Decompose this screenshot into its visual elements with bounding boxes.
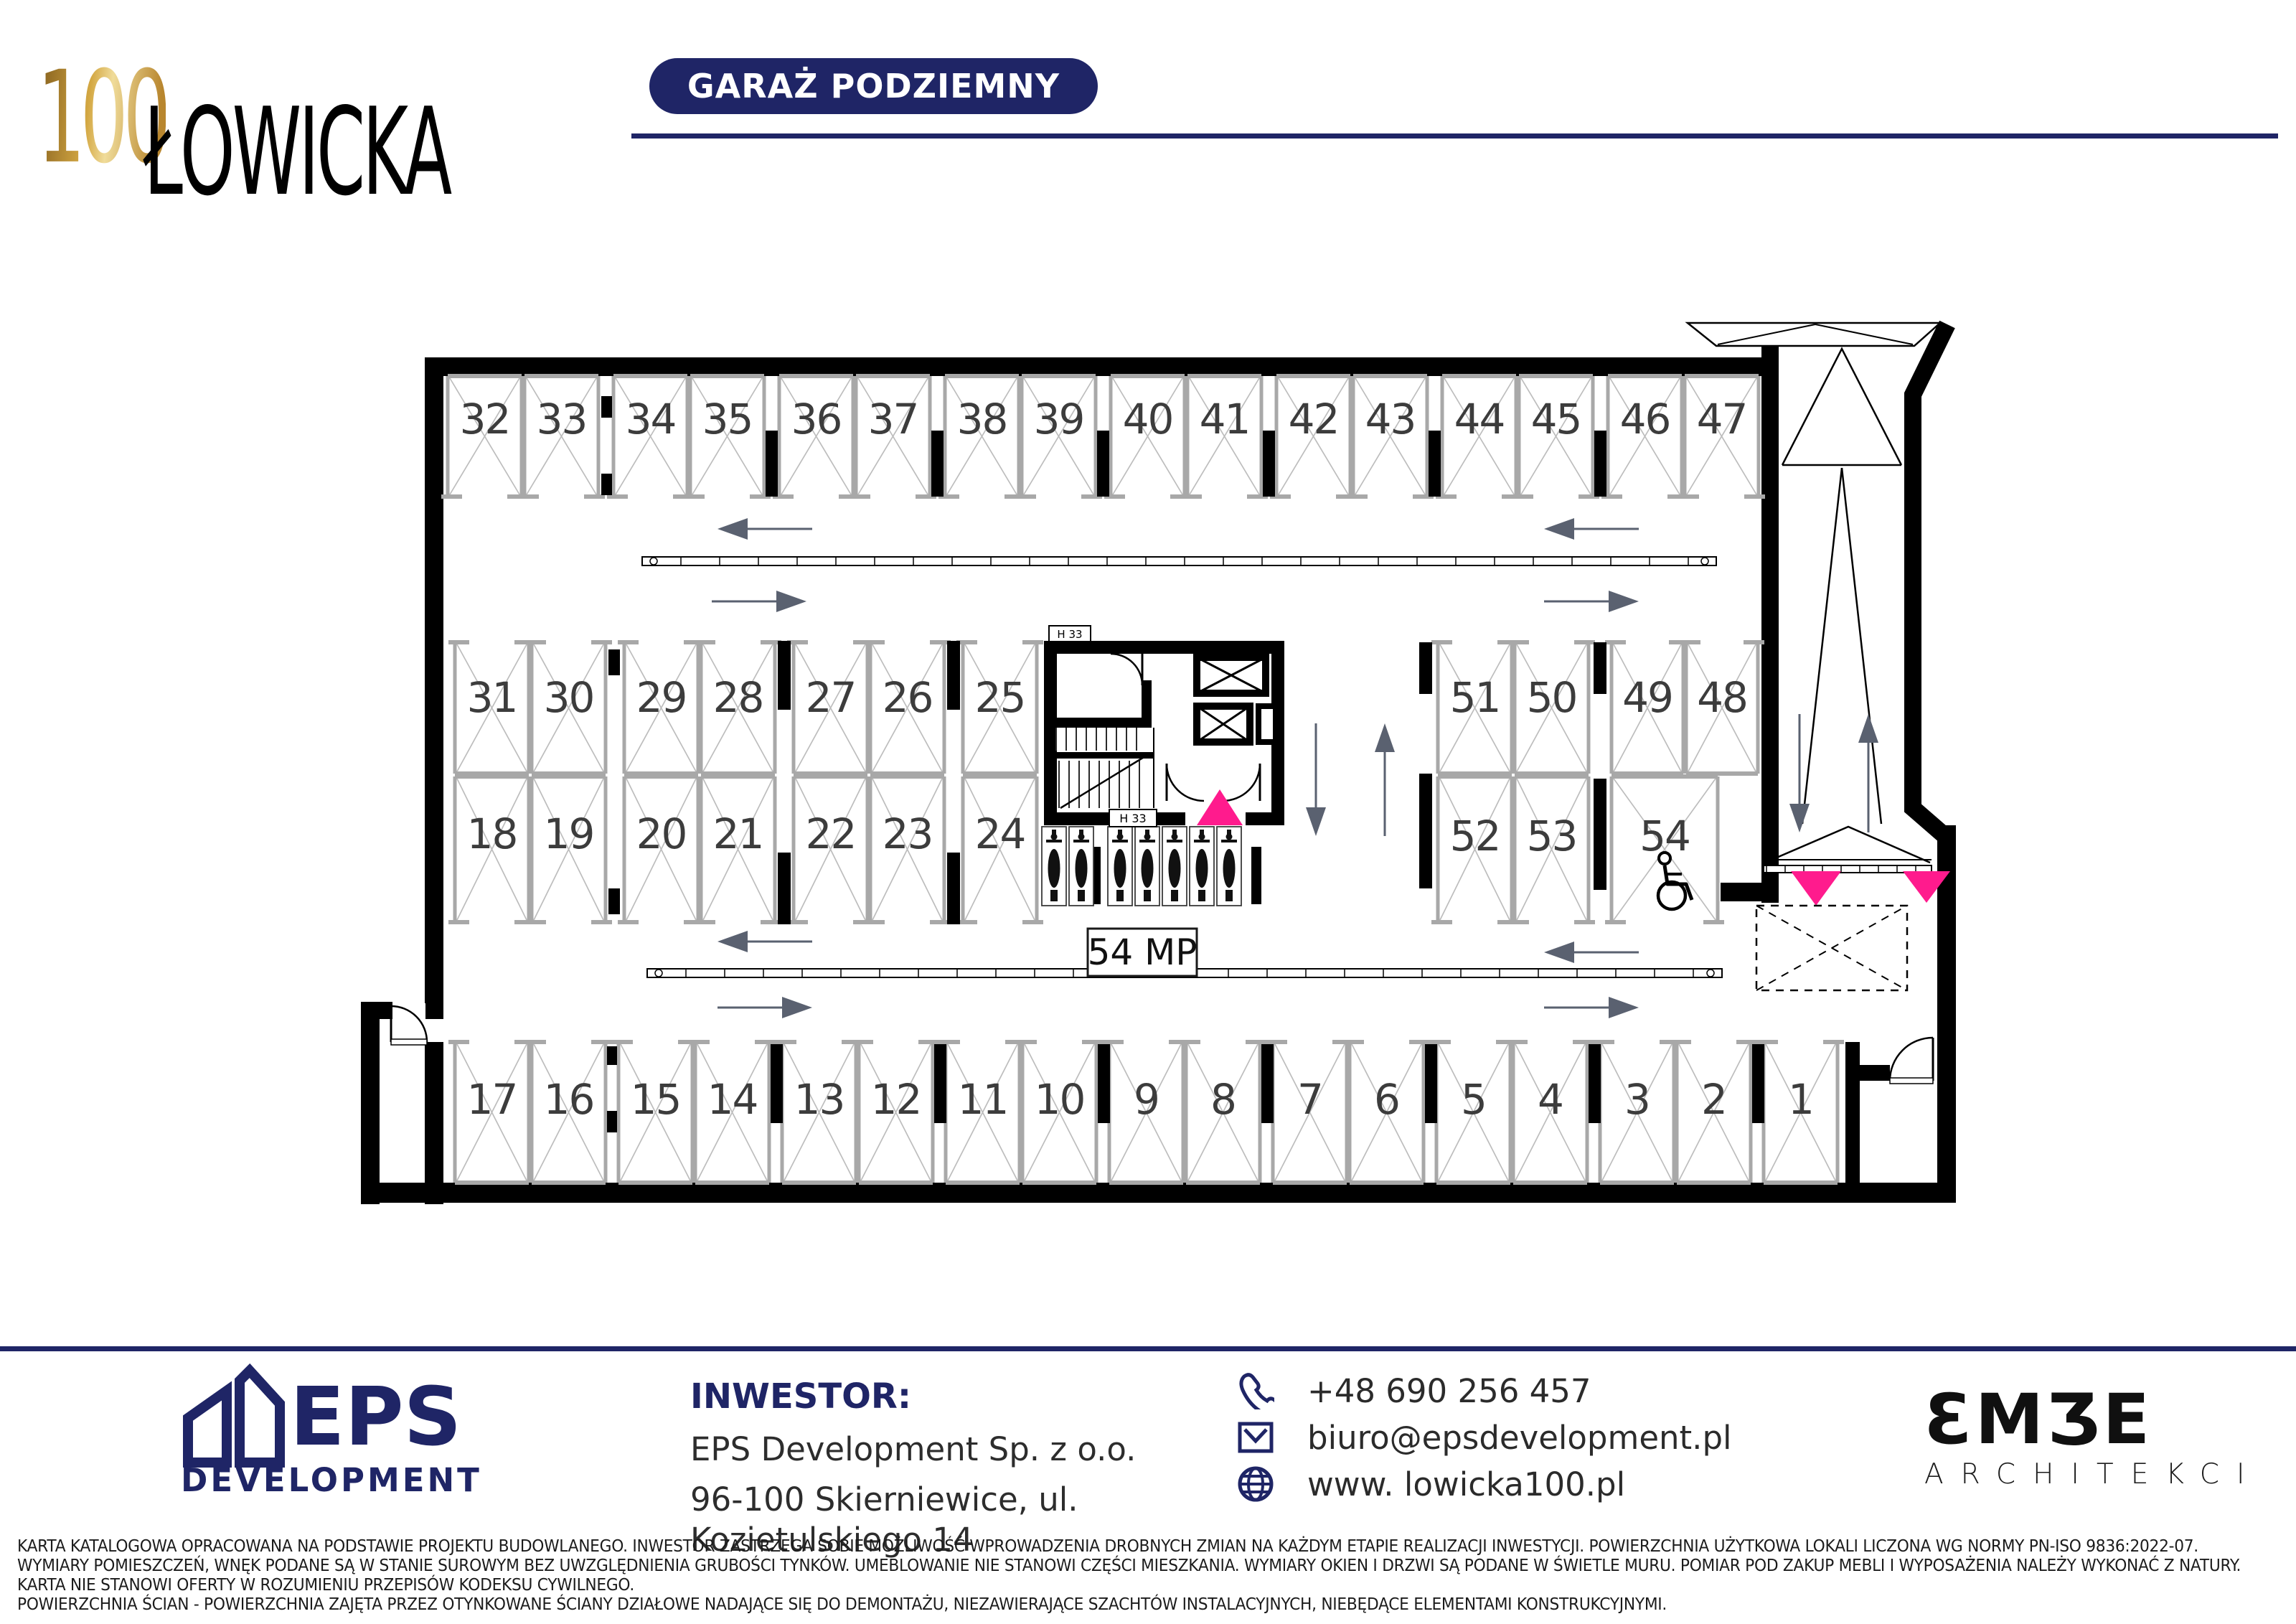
parking-space-32: 32 bbox=[441, 376, 528, 497]
phone-row: +48 690 256 457 bbox=[1237, 1372, 1782, 1409]
legal-disclaimer: KARTA KATALOGOWA OPRACOWANA NA PODSTAWIE… bbox=[17, 1537, 2295, 1615]
motorcycle-spaces bbox=[1042, 827, 1241, 906]
space-number: 45 bbox=[1531, 395, 1581, 443]
space-number: 7 bbox=[1297, 1075, 1322, 1124]
space-number: 51 bbox=[1450, 673, 1500, 722]
parking-space-40: 40 bbox=[1104, 376, 1191, 497]
parking-space-50: 50 bbox=[1508, 642, 1595, 774]
direction-arrow-left bbox=[717, 518, 812, 540]
disclaimer-line: POWIERZCHNIA ŚCIAN - POWIERZCHNIA ZAJĘTA… bbox=[17, 1595, 2295, 1615]
parking-space-20: 20 bbox=[618, 776, 705, 922]
space-number: 20 bbox=[636, 809, 687, 858]
parking-space-42: 42 bbox=[1270, 376, 1357, 497]
space-number: 24 bbox=[975, 809, 1025, 858]
space-number: 46 bbox=[1620, 395, 1670, 443]
space-number: 5 bbox=[1461, 1075, 1486, 1124]
motorcycle-space bbox=[1190, 827, 1214, 906]
parking-space-19: 19 bbox=[525, 776, 612, 922]
space-number: 26 bbox=[883, 673, 933, 722]
direction-arrow-left bbox=[1544, 942, 1639, 963]
svg-text:54 MP: 54 MP bbox=[1088, 931, 1198, 973]
parking-space-6: 6 bbox=[1343, 1042, 1430, 1183]
core-label: H 33 bbox=[1119, 812, 1146, 825]
parking-space-41: 41 bbox=[1181, 376, 1268, 497]
investor-company: EPS Development Sp. z o.o. bbox=[690, 1430, 1236, 1470]
parking-space-4: 4 bbox=[1507, 1042, 1594, 1183]
space-number: 3 bbox=[1624, 1075, 1650, 1124]
contact-block: +48 690 256 457 biuro@epsdevelopment.pl … bbox=[1237, 1372, 1782, 1512]
space-number: 49 bbox=[1622, 673, 1672, 722]
space-number: 14 bbox=[707, 1075, 758, 1124]
parking-space-37: 37 bbox=[850, 376, 936, 497]
total-spaces-label: 54 MP bbox=[1088, 929, 1198, 976]
space-number: 50 bbox=[1527, 673, 1577, 722]
parking-space-33: 33 bbox=[518, 376, 605, 497]
parking-space-25: 25 bbox=[956, 642, 1043, 774]
parking-space-48: 48 bbox=[1680, 642, 1764, 774]
space-number: 21 bbox=[713, 809, 763, 858]
space-number: 27 bbox=[806, 673, 856, 722]
space-number: 36 bbox=[791, 395, 842, 443]
space-number: 48 bbox=[1697, 673, 1747, 722]
space-number: 18 bbox=[467, 809, 517, 858]
space-number: 37 bbox=[868, 395, 918, 443]
parking-space-2: 2 bbox=[1670, 1042, 1757, 1183]
footer-divider bbox=[0, 1346, 2296, 1351]
parking-space-13: 13 bbox=[776, 1042, 862, 1183]
direction-arrow-left bbox=[717, 931, 812, 952]
parking-space-47: 47 bbox=[1678, 376, 1765, 497]
parking-space-24: 24 bbox=[956, 776, 1043, 922]
parking-space-28: 28 bbox=[695, 642, 781, 774]
parking-space-3: 3 bbox=[1594, 1042, 1680, 1183]
parking-space-52: 52 bbox=[1431, 776, 1518, 922]
parking-space-7: 7 bbox=[1266, 1042, 1353, 1183]
space-number: 29 bbox=[636, 673, 687, 722]
space-number: 16 bbox=[544, 1075, 594, 1124]
space-number: 30 bbox=[544, 673, 594, 722]
motorcycle-space bbox=[1042, 827, 1066, 906]
space-number: 38 bbox=[957, 395, 1007, 443]
parking-space-26: 26 bbox=[864, 642, 951, 774]
stair-elevator-core: H 33H 33 bbox=[1044, 626, 1284, 827]
catalog-card: { "header": { "logo_number": "100", "log… bbox=[0, 0, 2296, 1624]
parking-space-15: 15 bbox=[612, 1042, 699, 1183]
space-number: 47 bbox=[1697, 395, 1747, 443]
parking-space-46: 46 bbox=[1601, 376, 1688, 497]
parking-space-17: 17 bbox=[448, 1042, 535, 1183]
parking-space-9: 9 bbox=[1103, 1042, 1190, 1183]
space-number: 23 bbox=[883, 809, 933, 858]
space-number: 4 bbox=[1538, 1075, 1563, 1124]
motorcycle-space bbox=[1217, 827, 1241, 906]
space-number: 44 bbox=[1454, 395, 1505, 443]
direction-arrow-down bbox=[1789, 714, 1810, 832]
space-number: 25 bbox=[975, 673, 1025, 722]
parking-space-12: 12 bbox=[852, 1042, 939, 1183]
space-number: 1 bbox=[1788, 1075, 1813, 1124]
space-number: 10 bbox=[1035, 1075, 1085, 1124]
investor-label: INWESTOR: bbox=[690, 1376, 1236, 1417]
parking-space-38: 38 bbox=[938, 376, 1025, 497]
space-number: 22 bbox=[806, 809, 856, 858]
space-number: 32 bbox=[460, 395, 510, 443]
parking-space-43: 43 bbox=[1347, 376, 1434, 497]
email-address: biuro@epsdevelopment.pl bbox=[1307, 1419, 1732, 1457]
parking-space-14: 14 bbox=[689, 1042, 776, 1183]
parking-space-36: 36 bbox=[773, 376, 860, 497]
direction-arrow-down bbox=[1306, 723, 1326, 836]
direction-arrow-right bbox=[1544, 997, 1639, 1018]
space-number: 13 bbox=[794, 1075, 844, 1124]
space-number: 43 bbox=[1365, 395, 1416, 443]
space-number: 17 bbox=[467, 1075, 517, 1124]
lane-dividers bbox=[642, 557, 1722, 977]
space-number: 9 bbox=[1134, 1075, 1159, 1124]
embe-logo-subtitle: ARCHITEKCI bbox=[1924, 1458, 2226, 1491]
direction-arrow-left bbox=[1544, 518, 1639, 540]
phone-number: +48 690 256 457 bbox=[1307, 1372, 1591, 1410]
eps-logo-subtitle: DEVELOPMENT bbox=[181, 1461, 482, 1499]
email-icon bbox=[1237, 1419, 1274, 1456]
building-icon bbox=[179, 1362, 287, 1470]
space-number: 11 bbox=[958, 1075, 1008, 1124]
doors bbox=[391, 1006, 1933, 1084]
parking-space-1: 1 bbox=[1757, 1042, 1844, 1183]
direction-arrow-up bbox=[1375, 723, 1395, 836]
website-row: www. lowicka100.pl bbox=[1237, 1465, 1782, 1503]
entrance-marker bbox=[1197, 789, 1243, 825]
parking-space-16: 16 bbox=[525, 1042, 612, 1183]
space-number: 39 bbox=[1034, 395, 1084, 443]
space-number: 8 bbox=[1210, 1075, 1236, 1124]
website-url: www. lowicka100.pl bbox=[1307, 1465, 1625, 1503]
parking-space-5: 5 bbox=[1430, 1042, 1517, 1183]
motorcycle-space bbox=[1069, 827, 1093, 906]
parking-space-39: 39 bbox=[1015, 376, 1102, 497]
parking-space-22: 22 bbox=[787, 776, 874, 922]
space-number: 41 bbox=[1200, 395, 1250, 443]
motorcycle-space bbox=[1162, 827, 1187, 906]
parking-space-45: 45 bbox=[1512, 376, 1599, 497]
parking-space-8: 8 bbox=[1180, 1042, 1266, 1183]
core-label: H 33 bbox=[1057, 628, 1082, 641]
direction-arrows bbox=[712, 518, 1878, 1018]
email-row: biuro@epsdevelopment.pl bbox=[1237, 1419, 1782, 1456]
disclaimer-line: KARTA KATALOGOWA OPRACOWANA NA PODSTAWIE… bbox=[17, 1537, 2295, 1557]
space-number: 34 bbox=[626, 395, 676, 443]
disclaimer-line: WYMIARY POMIESZCZEŃ, WNĘK PODANE SĄ W ST… bbox=[17, 1557, 2295, 1576]
parking-space-31: 31 bbox=[448, 642, 535, 774]
space-number: 19 bbox=[544, 809, 594, 858]
parking-space-35: 35 bbox=[684, 376, 771, 497]
space-number: 33 bbox=[537, 395, 587, 443]
space-number: 2 bbox=[1701, 1075, 1726, 1124]
parking-space-44: 44 bbox=[1436, 376, 1523, 497]
parking-space-53: 53 bbox=[1508, 776, 1595, 922]
entrance-marker bbox=[1791, 871, 1841, 906]
parking-space-21: 21 bbox=[695, 776, 781, 922]
parking-space-51: 51 bbox=[1431, 642, 1518, 774]
direction-arrow-right bbox=[712, 591, 806, 612]
globe-icon bbox=[1237, 1465, 1274, 1503]
space-number: 12 bbox=[871, 1075, 921, 1124]
parking-space-27: 27 bbox=[787, 642, 874, 774]
parking-space-34: 34 bbox=[607, 376, 694, 497]
parking-space-29: 29 bbox=[618, 642, 705, 774]
embe-logo-name: ƐMƷE bbox=[1924, 1385, 2226, 1454]
space-number: 40 bbox=[1123, 395, 1173, 443]
parking-space-11: 11 bbox=[939, 1042, 1026, 1183]
embe-architekci-logo: ƐMƷE ARCHITEKCI bbox=[1924, 1385, 2226, 1491]
space-number: 53 bbox=[1527, 812, 1577, 860]
phone-icon bbox=[1237, 1372, 1274, 1409]
motorcycle-space bbox=[1135, 827, 1159, 906]
space-number: 52 bbox=[1450, 812, 1500, 860]
parking-space-18: 18 bbox=[448, 776, 535, 922]
motorcycle-space bbox=[1108, 827, 1132, 906]
parking-stalls: 3233343536373839404142434445464731302928… bbox=[441, 376, 1844, 1183]
space-number: 31 bbox=[467, 673, 517, 722]
space-number: 6 bbox=[1374, 1075, 1399, 1124]
eps-development-logo: EPS DEVELOPMENT bbox=[172, 1362, 502, 1506]
eps-logo-name: EPS bbox=[290, 1371, 461, 1464]
space-number: 35 bbox=[702, 395, 753, 443]
parking-space-30: 30 bbox=[525, 642, 612, 774]
space-number: 28 bbox=[713, 673, 763, 722]
direction-arrow-right bbox=[1544, 591, 1639, 612]
parking-space-54: 54 bbox=[1605, 776, 1724, 922]
space-number: 15 bbox=[631, 1075, 681, 1124]
parking-space-49: 49 bbox=[1605, 642, 1690, 774]
parking-space-23: 23 bbox=[864, 776, 951, 922]
space-number: 42 bbox=[1289, 395, 1339, 443]
disclaimer-line: KARTA NIE STANOWI OFERTY W ROZUMIENIU PR… bbox=[17, 1576, 2295, 1595]
direction-arrow-right bbox=[717, 997, 812, 1018]
parking-space-10: 10 bbox=[1016, 1042, 1103, 1183]
